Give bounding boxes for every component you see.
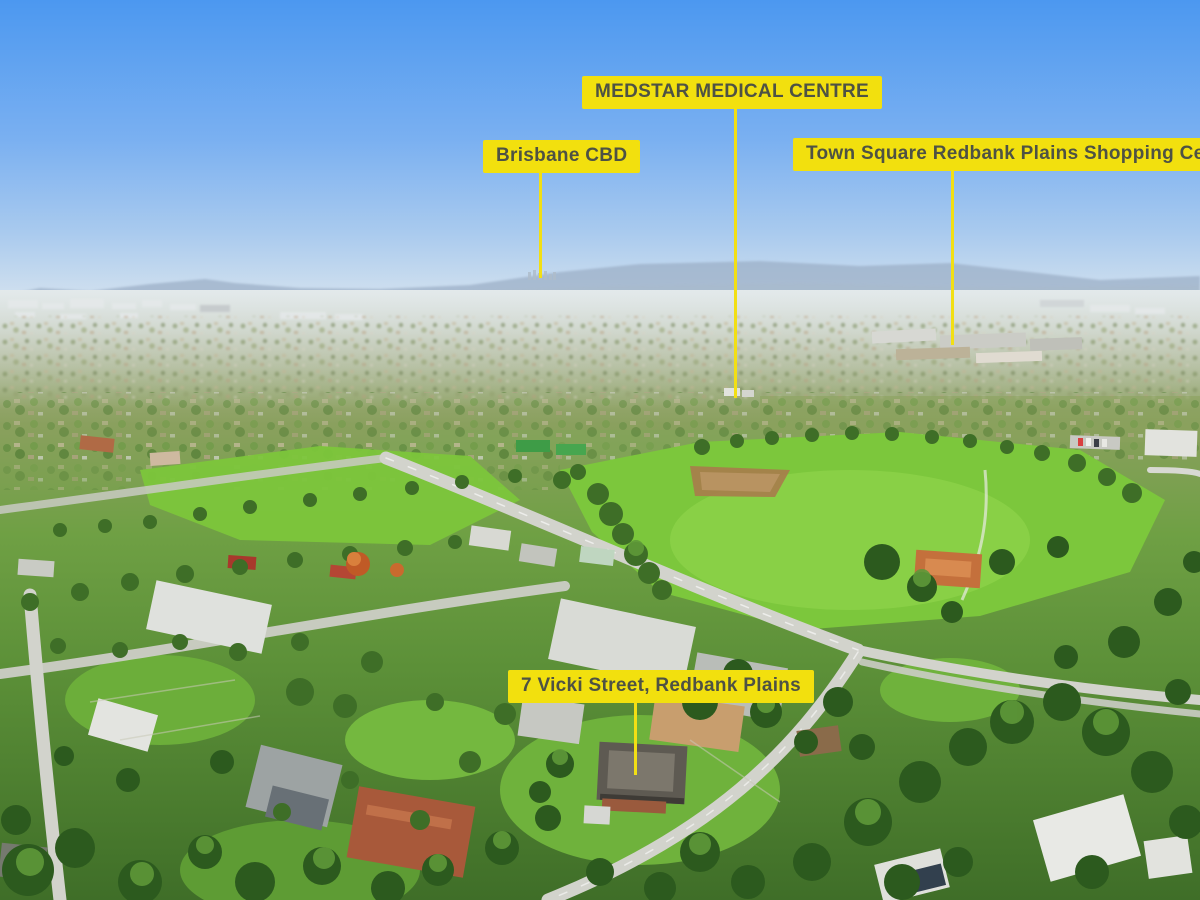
callout-medstar-medical-centre: MEDSTAR MEDICAL CENTRE bbox=[582, 76, 882, 109]
pointer-line-town-square bbox=[951, 166, 954, 345]
pointer-line-medstar bbox=[734, 106, 737, 398]
pointer-line-brisbane-cbd bbox=[539, 168, 542, 278]
callout-town-square-shopping-centre: Town Square Redbank Plains Shopping Cent… bbox=[793, 138, 1200, 171]
callout-vicki-street-property: 7 Vicki Street, Redbank Plains bbox=[508, 670, 814, 703]
aerial-photo: MEDSTAR MEDICAL CENTRE Brisbane CBD Town… bbox=[0, 0, 1200, 900]
pointer-line-vicki-street bbox=[634, 698, 637, 775]
photo-scene bbox=[0, 0, 1200, 900]
callout-brisbane-cbd: Brisbane CBD bbox=[483, 140, 640, 173]
